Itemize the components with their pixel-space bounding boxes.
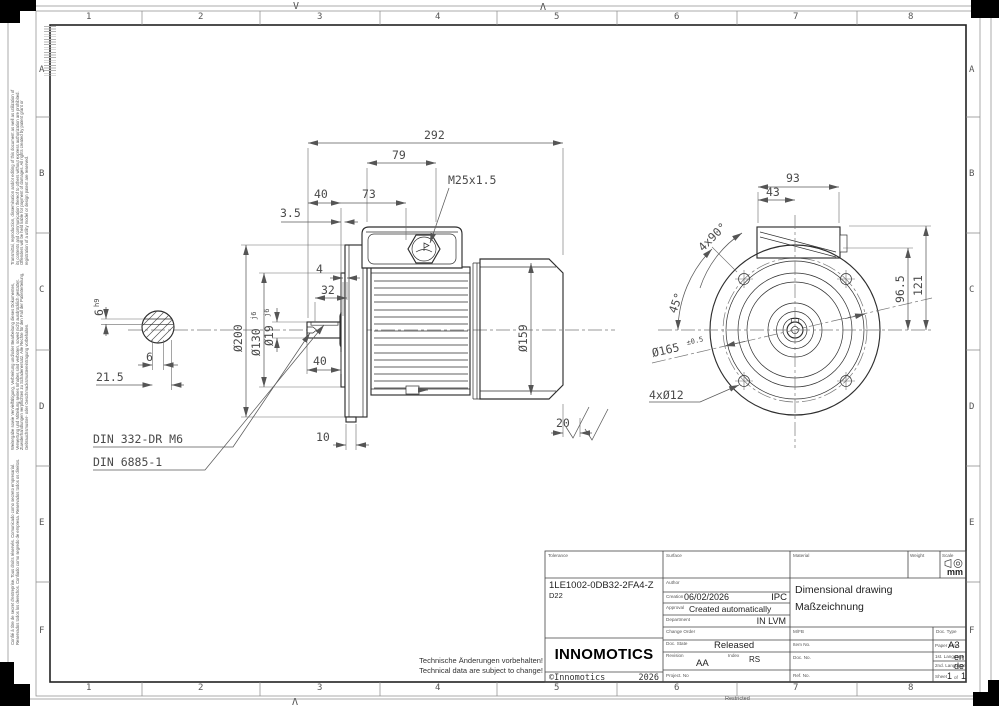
copyright-year: 2026 <box>600 673 659 683</box>
fold-mark: Λ <box>540 2 546 13</box>
item-no-label: Item No. <box>793 642 810 647</box>
creation-date: 06/02/2026 <box>684 592 729 602</box>
approval-value: Created automatically <box>689 604 771 614</box>
side-view: 6 h9 6 21.5 <box>92 128 615 470</box>
col-label-bottom: 3 <box>317 683 322 693</box>
change-note-de: Technische Änderungen vorbehalten! <box>343 656 543 666</box>
legal-text-en: Transmittal, reproduction, dissemination… <box>11 85 35 265</box>
row-label-right: A <box>969 65 974 75</box>
doc-state-label: Doc. State <box>666 641 687 646</box>
terminal-box-front <box>757 227 847 258</box>
front-view: 93 43 96.5 121 4x90° 45° Ø165 ±0.5 4xØ12 <box>649 171 934 448</box>
dim-bolt-circle: Ø165 <box>651 340 681 360</box>
dim-to-gland: 73 <box>362 187 376 201</box>
dim-key-height: 6 <box>92 309 106 316</box>
approval-label: Approval <box>666 605 684 610</box>
legal-text-de: Weitergabe sowie Vervielfältigung, Verbr… <box>11 268 35 450</box>
col-label-bottom: 1 <box>86 683 91 693</box>
surface-label: Surface <box>666 553 682 558</box>
col-label-top: 1 <box>86 12 91 22</box>
row-label-right: E <box>969 518 974 528</box>
col-label-bottom: 6 <box>674 683 679 693</box>
doc-no-label: Doc. No. <box>793 655 811 660</box>
fold-mark: Λ <box>292 697 298 706</box>
col-label-top: 2 <box>198 12 203 22</box>
legal-text-misc <box>44 26 56 78</box>
dim-box-width: 93 <box>786 171 800 185</box>
sheet-total: 1 <box>961 671 966 681</box>
change-order-label: Change Order <box>666 629 695 634</box>
corner-mark-top-left <box>0 0 36 23</box>
dim-spigot-offset: 3.5 <box>280 206 301 220</box>
change-note-en: Technical data are subject to change! <box>343 666 543 676</box>
scale-label: Scale <box>942 553 954 558</box>
dim-spigot-tolerance: j6 <box>250 312 258 320</box>
dim-step: 4 <box>316 262 323 276</box>
dim-holes: 4xØ12 <box>649 388 684 402</box>
dim-shaft-length: 40 <box>314 187 328 201</box>
revision-value: AA <box>696 658 709 669</box>
drain-plug <box>406 386 419 394</box>
flange-plate <box>341 245 367 422</box>
author-label: Author <box>666 580 680 585</box>
col-label-bottom: 7 <box>793 683 798 693</box>
mfb-label: M/FB <box>793 629 804 634</box>
dim-foot: 10 <box>316 430 330 444</box>
row-label-right: B <box>969 169 974 179</box>
terminal-box <box>362 227 462 268</box>
surface-finish-icon <box>566 407 608 440</box>
revision-label: Revision <box>666 653 684 658</box>
material-label: Material <box>793 553 809 558</box>
col-label-bottom: 4 <box>435 683 440 693</box>
dim-hole-pattern-angle: 4x90° <box>695 220 729 254</box>
index-label: Index <box>728 653 739 658</box>
sheet-no: 1 <box>947 671 952 681</box>
corner-mark-bottom-right <box>973 680 999 706</box>
dim-spigot-diameter: Ø130 <box>249 328 263 356</box>
dim-flange-diameter: Ø200 <box>231 324 245 352</box>
lang2-value: de <box>954 661 964 671</box>
shaft-key-section <box>124 294 186 356</box>
dim-total-length: 292 <box>424 128 445 142</box>
corner-mark-top-right <box>971 0 999 18</box>
doc-title-de: Maßzeichnung <box>795 601 864 613</box>
drawing-sheet: V Λ Λ 6 h9 6 21.5 <box>0 0 999 706</box>
paper-size-value: A3 <box>948 640 960 651</box>
dim-frame-diameter: Ø159 <box>516 324 530 352</box>
row-label-left: E <box>39 518 44 528</box>
doc-state-value: Released <box>714 640 754 651</box>
row-label-right: F <box>969 626 974 636</box>
legal-text-other: Confié à titre de secret d'entreprise. T… <box>11 455 35 645</box>
col-label-top: 3 <box>317 12 322 22</box>
col-label-top: 4 <box>435 12 440 22</box>
department-label: Department <box>666 617 690 622</box>
col-label-top: 6 <box>674 12 679 22</box>
dim-box-position: 79 <box>392 148 406 162</box>
dim-key-length: 40 <box>313 354 327 368</box>
innomotics-logo: INNOMOTICS <box>549 646 659 663</box>
col-label-top: 8 <box>908 12 913 22</box>
dim-key-offset: 21.5 <box>96 370 124 384</box>
row-label-right: C <box>969 285 974 295</box>
unit-value: mm <box>947 567 963 577</box>
project-no-label: Project. No <box>666 673 689 678</box>
restricted-label: Restricted <box>725 696 750 702</box>
dim-box-half: 43 <box>766 185 780 199</box>
col-label-bottom: 5 <box>554 683 559 693</box>
col-label-top: 7 <box>793 12 798 22</box>
row-label-left: C <box>39 285 44 295</box>
part-variant: D22 <box>549 591 563 600</box>
part-number: 1LE1002-0DB32-2FA4-Z <box>549 580 654 591</box>
dim-bolt-circle-tol: ±0.5 <box>686 335 704 347</box>
label-gland-thread: M25x1.5 <box>448 173 496 187</box>
dim-height-box: 96.5 <box>893 275 907 303</box>
row-label-left: D <box>39 402 44 412</box>
weight-label: Weight <box>910 553 924 558</box>
row-label-right: D <box>969 402 974 412</box>
sheet-label: Sheet <box>935 674 947 679</box>
department-value: IN LVM <box>726 616 786 626</box>
copyright-text: ©Innomotics <box>549 673 605 683</box>
doc-title-en: Dimensional drawing <box>795 584 892 596</box>
label-din-center-hole: DIN 332-DR M6 <box>93 432 183 446</box>
dim-height-top: 121 <box>911 275 925 296</box>
index-value: RS <box>749 655 760 664</box>
dim-key-height-tol: h9 <box>93 299 101 307</box>
corner-mark-bottom-left <box>0 662 30 706</box>
col-label-bottom: 2 <box>198 683 203 693</box>
dim-key-width: 6 <box>146 350 153 364</box>
motor-body <box>371 267 470 395</box>
sheet-of-label: of <box>954 675 958 680</box>
dim-hub: 32 <box>321 283 335 297</box>
creation-label: Creation <box>666 594 683 599</box>
creation-org: IPC <box>745 592 787 603</box>
dim-angle-45: 45° <box>666 291 686 315</box>
doc-type-label: Doc. Type <box>936 629 957 634</box>
row-label-left: B <box>39 169 44 179</box>
tolerance-label: Tolerance <box>548 553 568 558</box>
dim-rear: 20 <box>556 416 570 430</box>
col-label-bottom: 8 <box>908 683 913 693</box>
label-din-key: DIN 6885-1 <box>93 455 162 469</box>
change-note: Technische Änderungen vorbehalten! Techn… <box>343 656 543 676</box>
col-label-top: 5 <box>554 12 559 22</box>
fold-mark: V <box>293 1 299 12</box>
row-label-left: F <box>39 626 44 636</box>
ref-no-label: Ref. No. <box>793 673 810 678</box>
